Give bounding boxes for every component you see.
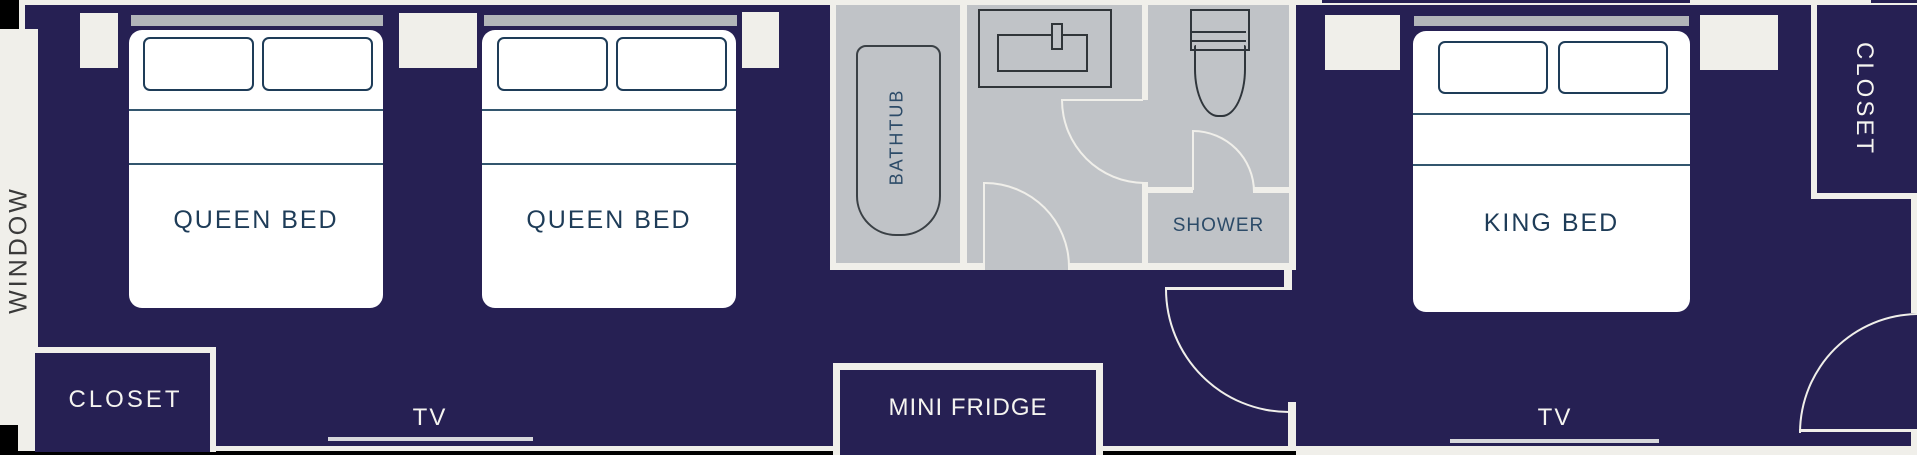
connecting-door-wall-stub-bottom [1288, 402, 1296, 446]
pillow [497, 37, 608, 91]
nightstand [399, 13, 477, 68]
pillow [143, 37, 254, 91]
right-tv-label: TV [1455, 404, 1655, 432]
sheet-line [129, 109, 383, 111]
queen-bed-1-headboard [131, 15, 383, 26]
top-edge-segment-2 [1871, 0, 1917, 3]
sheet-line [1413, 113, 1690, 115]
corner-artifact-top-left [0, 0, 19, 29]
king-bed-label: KING BED [1413, 209, 1690, 238]
floor-plan: WINDOW BATHTUB SHOWER QUEEN BED [0, 0, 1917, 455]
queen-bed-2-label: QUEEN BED [482, 206, 736, 235]
king-bed-headboard [1414, 16, 1689, 26]
left-tv-console [328, 437, 533, 441]
queen-bed-1-label: QUEEN BED [129, 206, 383, 235]
queen-bed-2-headboard [484, 15, 737, 26]
mini-fridge-label: MINI FRIDGE [840, 394, 1096, 422]
toilet-tank-line-1 [1192, 31, 1246, 33]
nightstand [1325, 15, 1400, 70]
left-closet-label: CLOSET [35, 386, 216, 414]
pillow [1438, 41, 1548, 94]
right-closet-label: CLOSET [1850, 42, 1878, 156]
top-wall-notch [25, 5, 38, 29]
sheet-line [482, 163, 736, 165]
shower-label: SHOWER [1148, 215, 1289, 237]
toilet-tank-line-2 [1192, 40, 1246, 42]
nightstand [742, 12, 779, 68]
window-label: WINDOW [5, 186, 34, 314]
sheet-line [482, 109, 736, 111]
connecting-door-wall-stub-top [1284, 263, 1292, 290]
entry-door-leaf [1799, 429, 1917, 432]
bathtub-label: BATHTUB [887, 89, 908, 186]
nightstand [80, 13, 118, 68]
sink-basin-icon [997, 34, 1088, 72]
left-tv-label: TV [330, 404, 530, 432]
top-edge-segment-1 [1322, 0, 1690, 3]
nightstand [1700, 15, 1778, 70]
pillow [616, 37, 727, 91]
right-tv-console [1450, 439, 1659, 443]
sheet-line [1413, 164, 1690, 166]
pillow [262, 37, 373, 91]
sink-faucet-icon [1051, 23, 1063, 50]
pillow [1558, 41, 1668, 94]
sheet-line [129, 163, 383, 165]
